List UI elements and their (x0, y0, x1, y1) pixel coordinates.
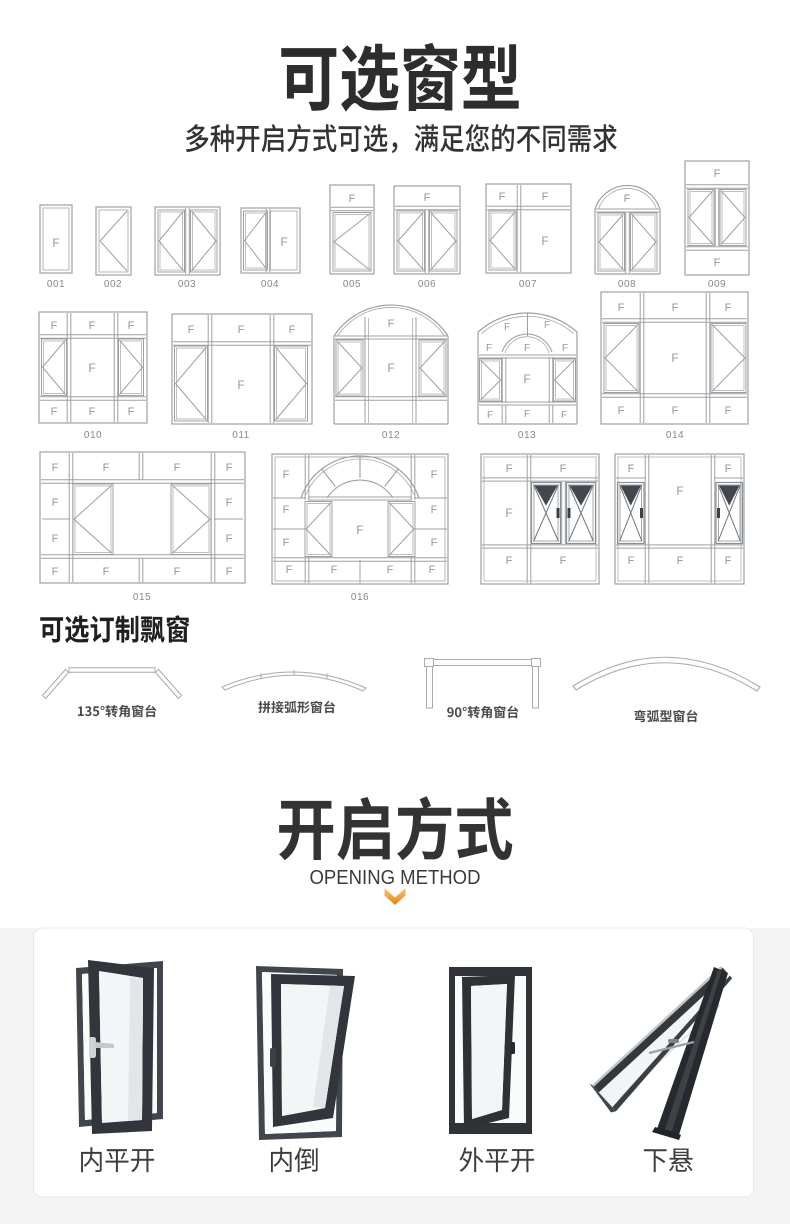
svg-text:F: F (506, 555, 513, 567)
svg-text:F: F (523, 372, 530, 386)
svg-text:010: 010 (84, 430, 102, 441)
svg-text:F: F (725, 405, 732, 417)
svg-text:005: 005 (343, 279, 361, 290)
svg-text:F: F (356, 523, 363, 537)
svg-text:F: F (725, 463, 732, 475)
svg-text:016: 016 (351, 592, 369, 603)
svg-text:F: F (88, 361, 95, 375)
svg-text:F: F (424, 192, 431, 204)
svg-text:006: 006 (418, 279, 436, 290)
svg-text:F: F (103, 566, 110, 578)
svg-text:F: F (52, 462, 59, 474)
svg-text:F: F (671, 351, 678, 365)
svg-text:F: F (283, 469, 290, 481)
svg-text:F: F (226, 533, 233, 545)
svg-text:F: F (506, 463, 513, 475)
svg-text:F: F (560, 463, 567, 475)
svg-text:F: F (226, 566, 233, 578)
svg-text:OPENING METHOD: OPENING METHOD (310, 866, 481, 889)
svg-text:F: F (524, 409, 530, 420)
svg-text:F: F (541, 234, 548, 248)
svg-text:F: F (387, 564, 394, 576)
svg-text:F: F (226, 462, 233, 474)
svg-text:012: 012 (382, 430, 400, 441)
svg-text:F: F (289, 324, 296, 336)
svg-text:015: 015 (133, 592, 151, 603)
svg-text:F: F (505, 506, 512, 520)
svg-text:F: F (542, 191, 549, 203)
svg-text:F: F (387, 361, 394, 375)
svg-text:F: F (52, 533, 59, 545)
svg-text:F: F (676, 484, 683, 498)
svg-text:F: F (89, 406, 96, 418)
svg-text:007: 007 (519, 279, 537, 290)
svg-text:F: F (52, 497, 59, 509)
svg-text:F: F (618, 302, 625, 314)
svg-text:F: F (725, 555, 732, 567)
svg-text:F: F (103, 462, 110, 474)
svg-text:F: F (504, 322, 510, 333)
svg-text:F: F (174, 462, 181, 474)
svg-text:004: 004 (261, 279, 279, 290)
svg-text:F: F (486, 343, 492, 354)
svg-text:001: 001 (47, 279, 65, 290)
svg-text:F: F (562, 343, 568, 354)
svg-text:F: F (331, 564, 338, 576)
svg-text:F: F (431, 537, 438, 549)
svg-text:F: F (283, 537, 290, 549)
svg-text:F: F (499, 191, 506, 203)
svg-text:003: 003 (178, 279, 196, 290)
svg-text:002: 002 (104, 279, 122, 290)
svg-text:F: F (624, 193, 631, 205)
svg-text:014: 014 (666, 430, 684, 441)
svg-text:F: F (487, 410, 493, 421)
svg-text:008: 008 (618, 279, 636, 290)
svg-text:F: F (52, 236, 59, 250)
svg-text:013: 013 (518, 430, 536, 441)
svg-text:F: F (628, 463, 635, 475)
svg-text:F: F (51, 320, 58, 332)
svg-text:F: F (544, 320, 550, 331)
svg-text:F: F (388, 318, 395, 330)
svg-text:F: F (431, 469, 438, 481)
svg-text:009: 009 (708, 279, 726, 290)
svg-text:F: F (349, 193, 356, 205)
svg-text:F: F (174, 566, 181, 578)
svg-text:F: F (560, 555, 567, 567)
svg-text:F: F (128, 406, 135, 418)
svg-text:F: F (618, 405, 625, 417)
svg-text:F: F (51, 406, 58, 418)
svg-text:F: F (672, 405, 679, 417)
svg-text:F: F (237, 378, 244, 392)
svg-text:F: F (52, 566, 59, 578)
svg-text:F: F (89, 320, 96, 332)
svg-text:F: F (238, 324, 245, 336)
svg-text:F: F (714, 257, 721, 269)
svg-text:011: 011 (232, 430, 249, 441)
svg-text:F: F (280, 235, 287, 249)
svg-text:F: F (286, 564, 293, 576)
svg-text:F: F (725, 302, 732, 314)
svg-text:F: F (524, 343, 530, 354)
svg-text:F: F (561, 410, 567, 421)
svg-text:F: F (226, 497, 233, 509)
svg-text:F: F (714, 168, 721, 180)
svg-text:F: F (628, 555, 635, 567)
svg-text:F: F (431, 504, 438, 516)
svg-text:F: F (672, 302, 679, 314)
svg-text:F: F (677, 555, 684, 567)
svg-text:F: F (128, 320, 135, 332)
svg-text:F: F (188, 324, 195, 336)
svg-text:F: F (283, 504, 290, 516)
svg-text:F: F (429, 564, 436, 576)
